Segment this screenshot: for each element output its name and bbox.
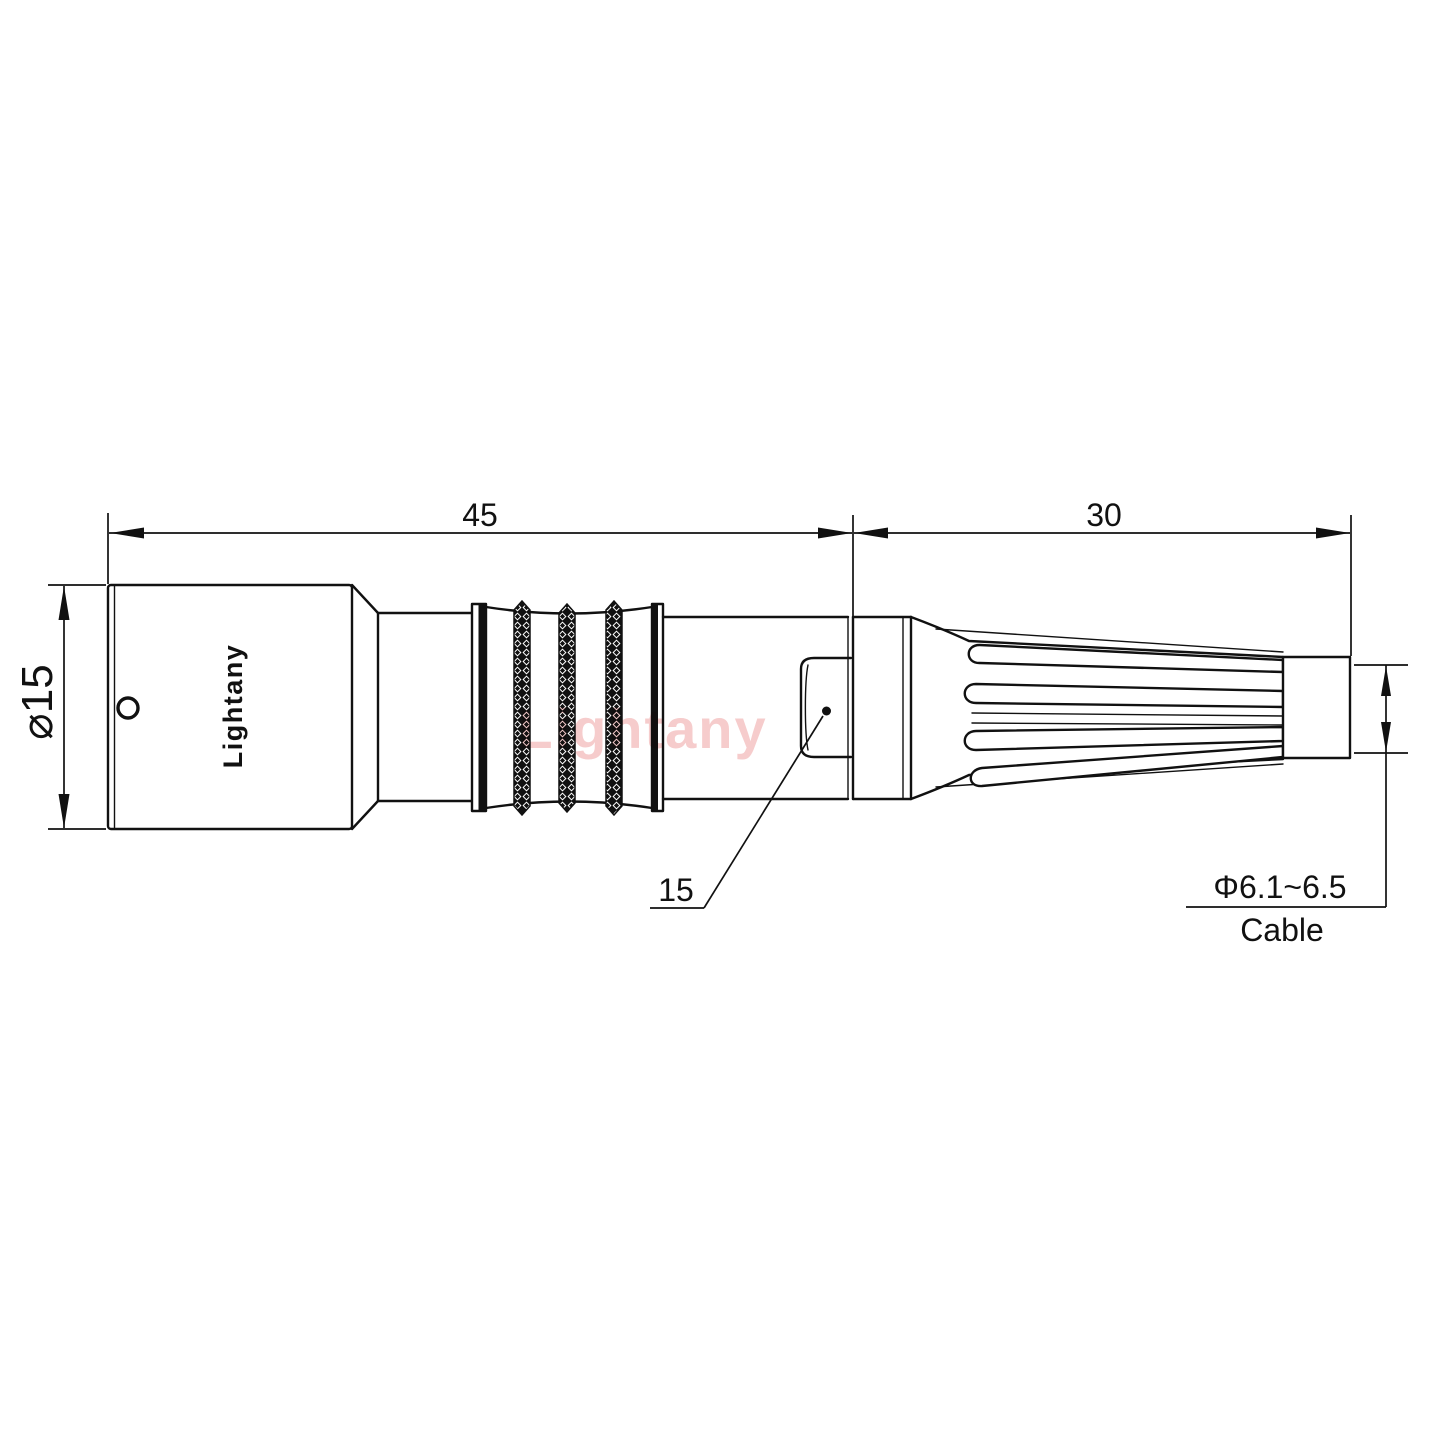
cable-exit-block	[1283, 657, 1350, 758]
cable-diameter-label: Φ6.1~6.5	[1213, 869, 1346, 905]
latch-window-inner-edge	[805, 665, 808, 750]
arrowhead-right	[1316, 528, 1350, 539]
collar-ring	[853, 617, 911, 799]
neck-section	[378, 613, 473, 801]
arrowhead-down	[1381, 722, 1391, 752]
dimension-label-d15: ⌀15	[13, 664, 62, 739]
grip-left-cap-stripe	[479, 604, 487, 811]
arrowhead-left	[854, 528, 888, 539]
watermark-text: Lightany	[518, 697, 767, 760]
connector-technical-drawing-page: 45 30 ⌀15 Lightany	[0, 0, 1440, 1440]
dimension-boot-length: 30	[854, 497, 1351, 656]
boot-center-ridge-2	[972, 723, 1283, 725]
connector-body: Lightany	[108, 585, 378, 829]
arrowhead-down	[59, 794, 70, 828]
leader-label-15: 15	[658, 872, 694, 908]
boot-flute-2	[965, 684, 1283, 707]
strain-relief-boot	[911, 617, 1350, 799]
arrowhead-left	[110, 528, 144, 539]
dimension-body-diameter: ⌀15	[13, 585, 106, 829]
cable-label: Cable	[1240, 912, 1324, 948]
brand-text: Lightany	[218, 644, 248, 769]
arrowhead-up	[59, 586, 70, 620]
chamfer-top	[352, 585, 378, 613]
boot-center-ridge-1	[972, 713, 1283, 716]
chamfer-bottom	[352, 801, 378, 829]
arrowhead-right	[818, 528, 852, 539]
dimension-label-45: 45	[462, 497, 498, 533]
connector-technical-drawing: 45 30 ⌀15 Lightany	[0, 0, 1440, 1440]
arrowhead-up	[1381, 666, 1391, 696]
dimension-label-30: 30	[1086, 497, 1122, 533]
boot-flute-4	[971, 746, 1283, 786]
leader-anchor-dot	[822, 707, 831, 716]
boot-flute-3	[965, 727, 1283, 750]
